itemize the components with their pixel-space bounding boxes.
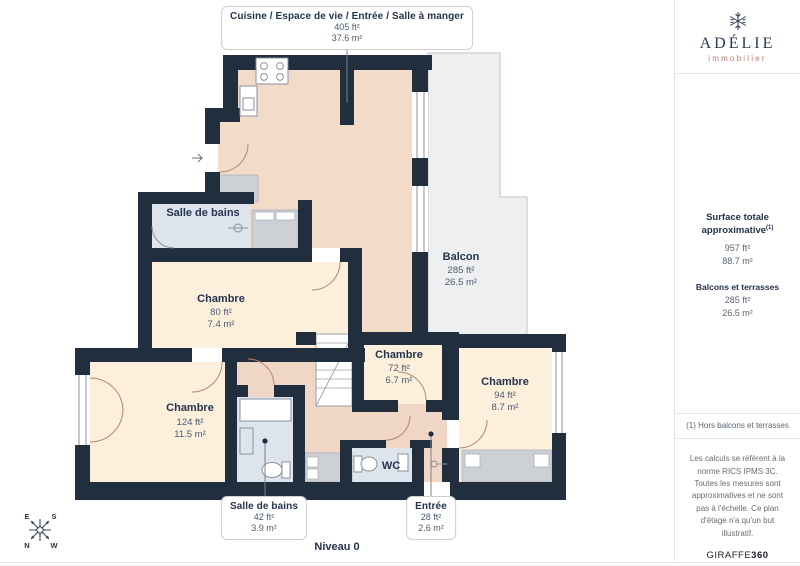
balconies-m: 26.5 m² [675, 307, 800, 320]
svg-text:Balcon: Balcon [443, 251, 480, 263]
callout-bathroom: Salle de bains 42 ft² 3.9 m² [221, 496, 307, 540]
svg-text:80 ft²: 80 ft² [210, 307, 232, 318]
svg-text:Chambre: Chambre [197, 293, 245, 305]
disclaimer-text: Les calculs se réfèrent à la norme RICS … [685, 453, 790, 540]
stairs [316, 334, 352, 406]
svg-text:124 ft²: 124 ft² [177, 417, 204, 428]
svg-text:7.4 m²: 7.4 m² [208, 319, 235, 330]
stove-icon [256, 58, 288, 84]
floorplan-canvas: Salle de bains Balcon 285 ft² 26.5 m² Ch… [0, 0, 674, 566]
svg-text:6.7 m²: 6.7 m² [386, 375, 413, 386]
floorplan-page: { "plan": { "level_label": "Niveau 0", "… [0, 0, 800, 566]
entry-arrow-icon [192, 154, 202, 162]
svg-text:8.7 m²: 8.7 m² [492, 402, 519, 413]
balconies-title: Balcons et terrasses [675, 282, 800, 292]
svg-text:26.5 m²: 26.5 m² [445, 277, 477, 288]
svg-text:E: E [24, 512, 29, 521]
svg-text:Chambre: Chambre [481, 376, 529, 388]
surface-m: 88.7 m² [675, 255, 800, 268]
info-sidebar: ADÉLIE immobilier Surface totale approxi… [674, 0, 800, 561]
level-label: Niveau 0 [0, 541, 674, 553]
callout-kitchen-title: Cuisine / Espace de vie / Entrée / Salle… [230, 11, 464, 22]
svg-text:Chambre: Chambre [375, 349, 423, 361]
svg-text:Chambre: Chambre [166, 402, 214, 414]
room-balcony [428, 53, 527, 340]
disclaimer-section: Les calculs se réfèrent à la norme RICS … [675, 439, 800, 561]
label-salle-de-bains-top: Salle de bains [166, 207, 239, 219]
svg-text:94 ft²: 94 ft² [494, 390, 516, 401]
surface-title: Surface totale approximative(1) [675, 212, 800, 237]
snowflake-icon [727, 10, 749, 32]
callout-entry: Entrée 28 ft² 2.6 m² [406, 496, 456, 540]
giraffe360-logo: GIRAFFE360 [685, 550, 790, 561]
bottom-divider [0, 562, 800, 563]
footnote: (1) Hors balcons et terrasses [675, 414, 800, 440]
floorplan-svg: Salle de bains Balcon 285 ft² 26.5 m² Ch… [0, 0, 674, 566]
callout-bathroom-title: Salle de bains [230, 501, 298, 512]
brand-tagline: immobilier [708, 54, 766, 63]
callout-entry-title: Entrée [415, 501, 447, 512]
vanity-icon [240, 399, 291, 421]
callout-kitchen: Cuisine / Espace de vie / Entrée / Salle… [221, 6, 473, 50]
surface-ft: 957 ft² [675, 242, 800, 255]
brand-logo: ADÉLIE immobilier [675, 0, 800, 74]
surface-summary: Surface totale approximative(1) 957 ft² … [675, 74, 800, 413]
svg-text:WC: WC [382, 460, 400, 472]
svg-text:S: S [51, 512, 56, 521]
brand-name: ADÉLIE [700, 35, 776, 53]
svg-text:285 ft²: 285 ft² [448, 265, 475, 276]
svg-text:72 ft²: 72 ft² [388, 363, 410, 374]
balconies-ft: 285 ft² [675, 294, 800, 307]
svg-text:11.5 m²: 11.5 m² [174, 429, 206, 440]
